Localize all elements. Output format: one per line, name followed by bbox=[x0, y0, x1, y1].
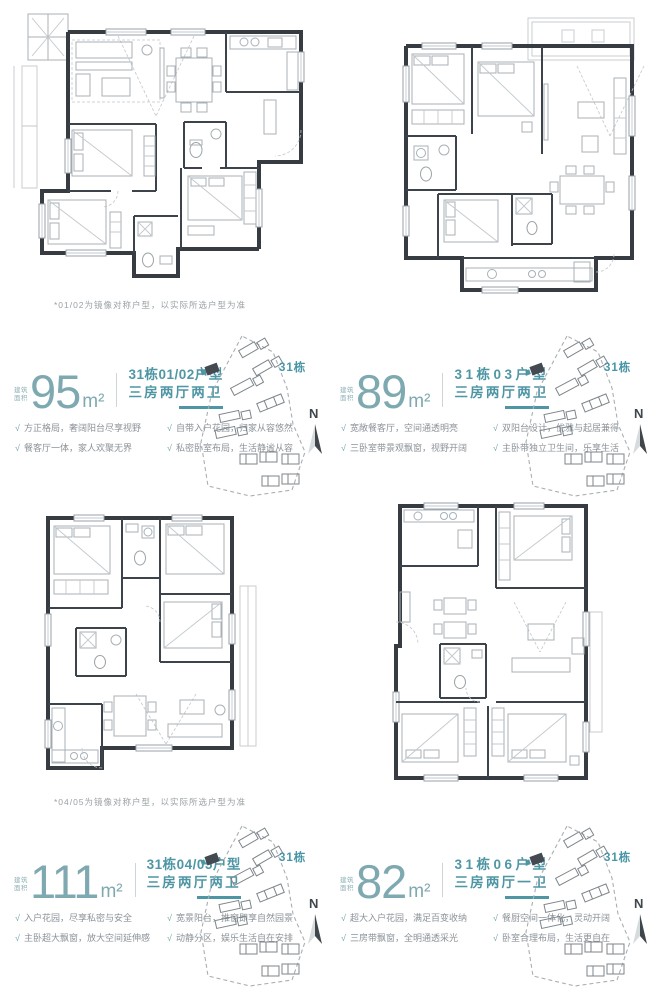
area-value: 111 m² bbox=[30, 863, 123, 901]
check-icon: √ bbox=[167, 914, 172, 923]
site-map: 31栋 N bbox=[513, 330, 660, 500]
north-arrow-icon: N bbox=[633, 896, 647, 944]
area-label: 建筑 面积 bbox=[14, 387, 28, 403]
floor-plan-89 bbox=[362, 6, 658, 298]
feature-item: √入户花园，尽享私密与安全 bbox=[15, 914, 165, 923]
site-map: 31栋 N bbox=[188, 820, 338, 990]
check-icon: √ bbox=[493, 424, 498, 433]
floor-plan-95 bbox=[6, 4, 324, 296]
building-31-label: 31栋 bbox=[604, 850, 631, 864]
check-icon: √ bbox=[493, 934, 498, 943]
site-map: 31栋 N bbox=[513, 820, 660, 990]
divider bbox=[135, 863, 136, 897]
area-label: 建筑 面积 bbox=[340, 877, 354, 893]
check-icon: √ bbox=[341, 914, 346, 923]
feature-item: √方正格局，奢阔阳台尽享视野 bbox=[15, 424, 165, 433]
check-icon: √ bbox=[167, 444, 172, 453]
area-value: 82 m² bbox=[356, 863, 430, 901]
feature-item: √主卧超大飘窗，放大空间延伸感 bbox=[15, 934, 165, 943]
check-icon: √ bbox=[15, 444, 20, 453]
floor-plan-111 bbox=[16, 494, 308, 796]
check-icon: √ bbox=[341, 444, 346, 453]
site-map: 31栋 N bbox=[188, 330, 338, 500]
check-icon: √ bbox=[493, 444, 498, 453]
feature-item: √三房带飘窗，全明通透采光 bbox=[341, 934, 491, 943]
svg-text:N: N bbox=[309, 896, 318, 911]
divider bbox=[442, 863, 443, 897]
feature-item: √三卧室带景观飘窗，视野开阔 bbox=[341, 444, 491, 453]
feature-item: √餐客厅一体，家人欢聚无界 bbox=[15, 444, 165, 453]
check-icon: √ bbox=[493, 914, 498, 923]
area-label: 建筑 面积 bbox=[340, 387, 354, 403]
floor-plan-82 bbox=[344, 492, 636, 794]
building-31-label: 31栋 bbox=[604, 360, 631, 374]
north-arrow-icon: N bbox=[633, 406, 647, 454]
footnote-0405: *04/05为镜像对称户型，以实际所选户型为准 bbox=[20, 796, 280, 808]
building-31-label: 31栋 bbox=[279, 850, 306, 864]
check-icon: √ bbox=[341, 934, 346, 943]
feature-item: √宽敞餐客厅，空间通透明亮 bbox=[341, 424, 491, 433]
feature-item: √超大入户花园，满足百变收纳 bbox=[341, 914, 491, 923]
north-arrow-icon: N bbox=[308, 406, 322, 454]
divider bbox=[116, 373, 117, 407]
svg-text:N: N bbox=[634, 896, 643, 911]
check-icon: √ bbox=[15, 424, 20, 433]
building-31-label: 31栋 bbox=[279, 360, 306, 374]
check-icon: √ bbox=[167, 934, 172, 943]
footnote-0102: *01/02为镜像对称户型，以实际所选户型为准 bbox=[20, 299, 280, 311]
svg-text:N: N bbox=[309, 406, 318, 421]
area-value: 89 m² bbox=[356, 373, 430, 411]
divider bbox=[442, 373, 443, 407]
check-icon: √ bbox=[15, 934, 20, 943]
area-label: 建筑 面积 bbox=[14, 877, 28, 893]
svg-text:N: N bbox=[634, 406, 643, 421]
floorplan-poster: *01/02为镜像对称户型，以实际所选户型为准 建筑 面积 95 m² 31栋0… bbox=[0, 0, 660, 990]
area-value: 95 m² bbox=[30, 373, 104, 411]
check-icon: √ bbox=[167, 424, 172, 433]
check-icon: √ bbox=[15, 914, 20, 923]
check-icon: √ bbox=[341, 424, 346, 433]
north-arrow-icon: N bbox=[308, 896, 322, 944]
